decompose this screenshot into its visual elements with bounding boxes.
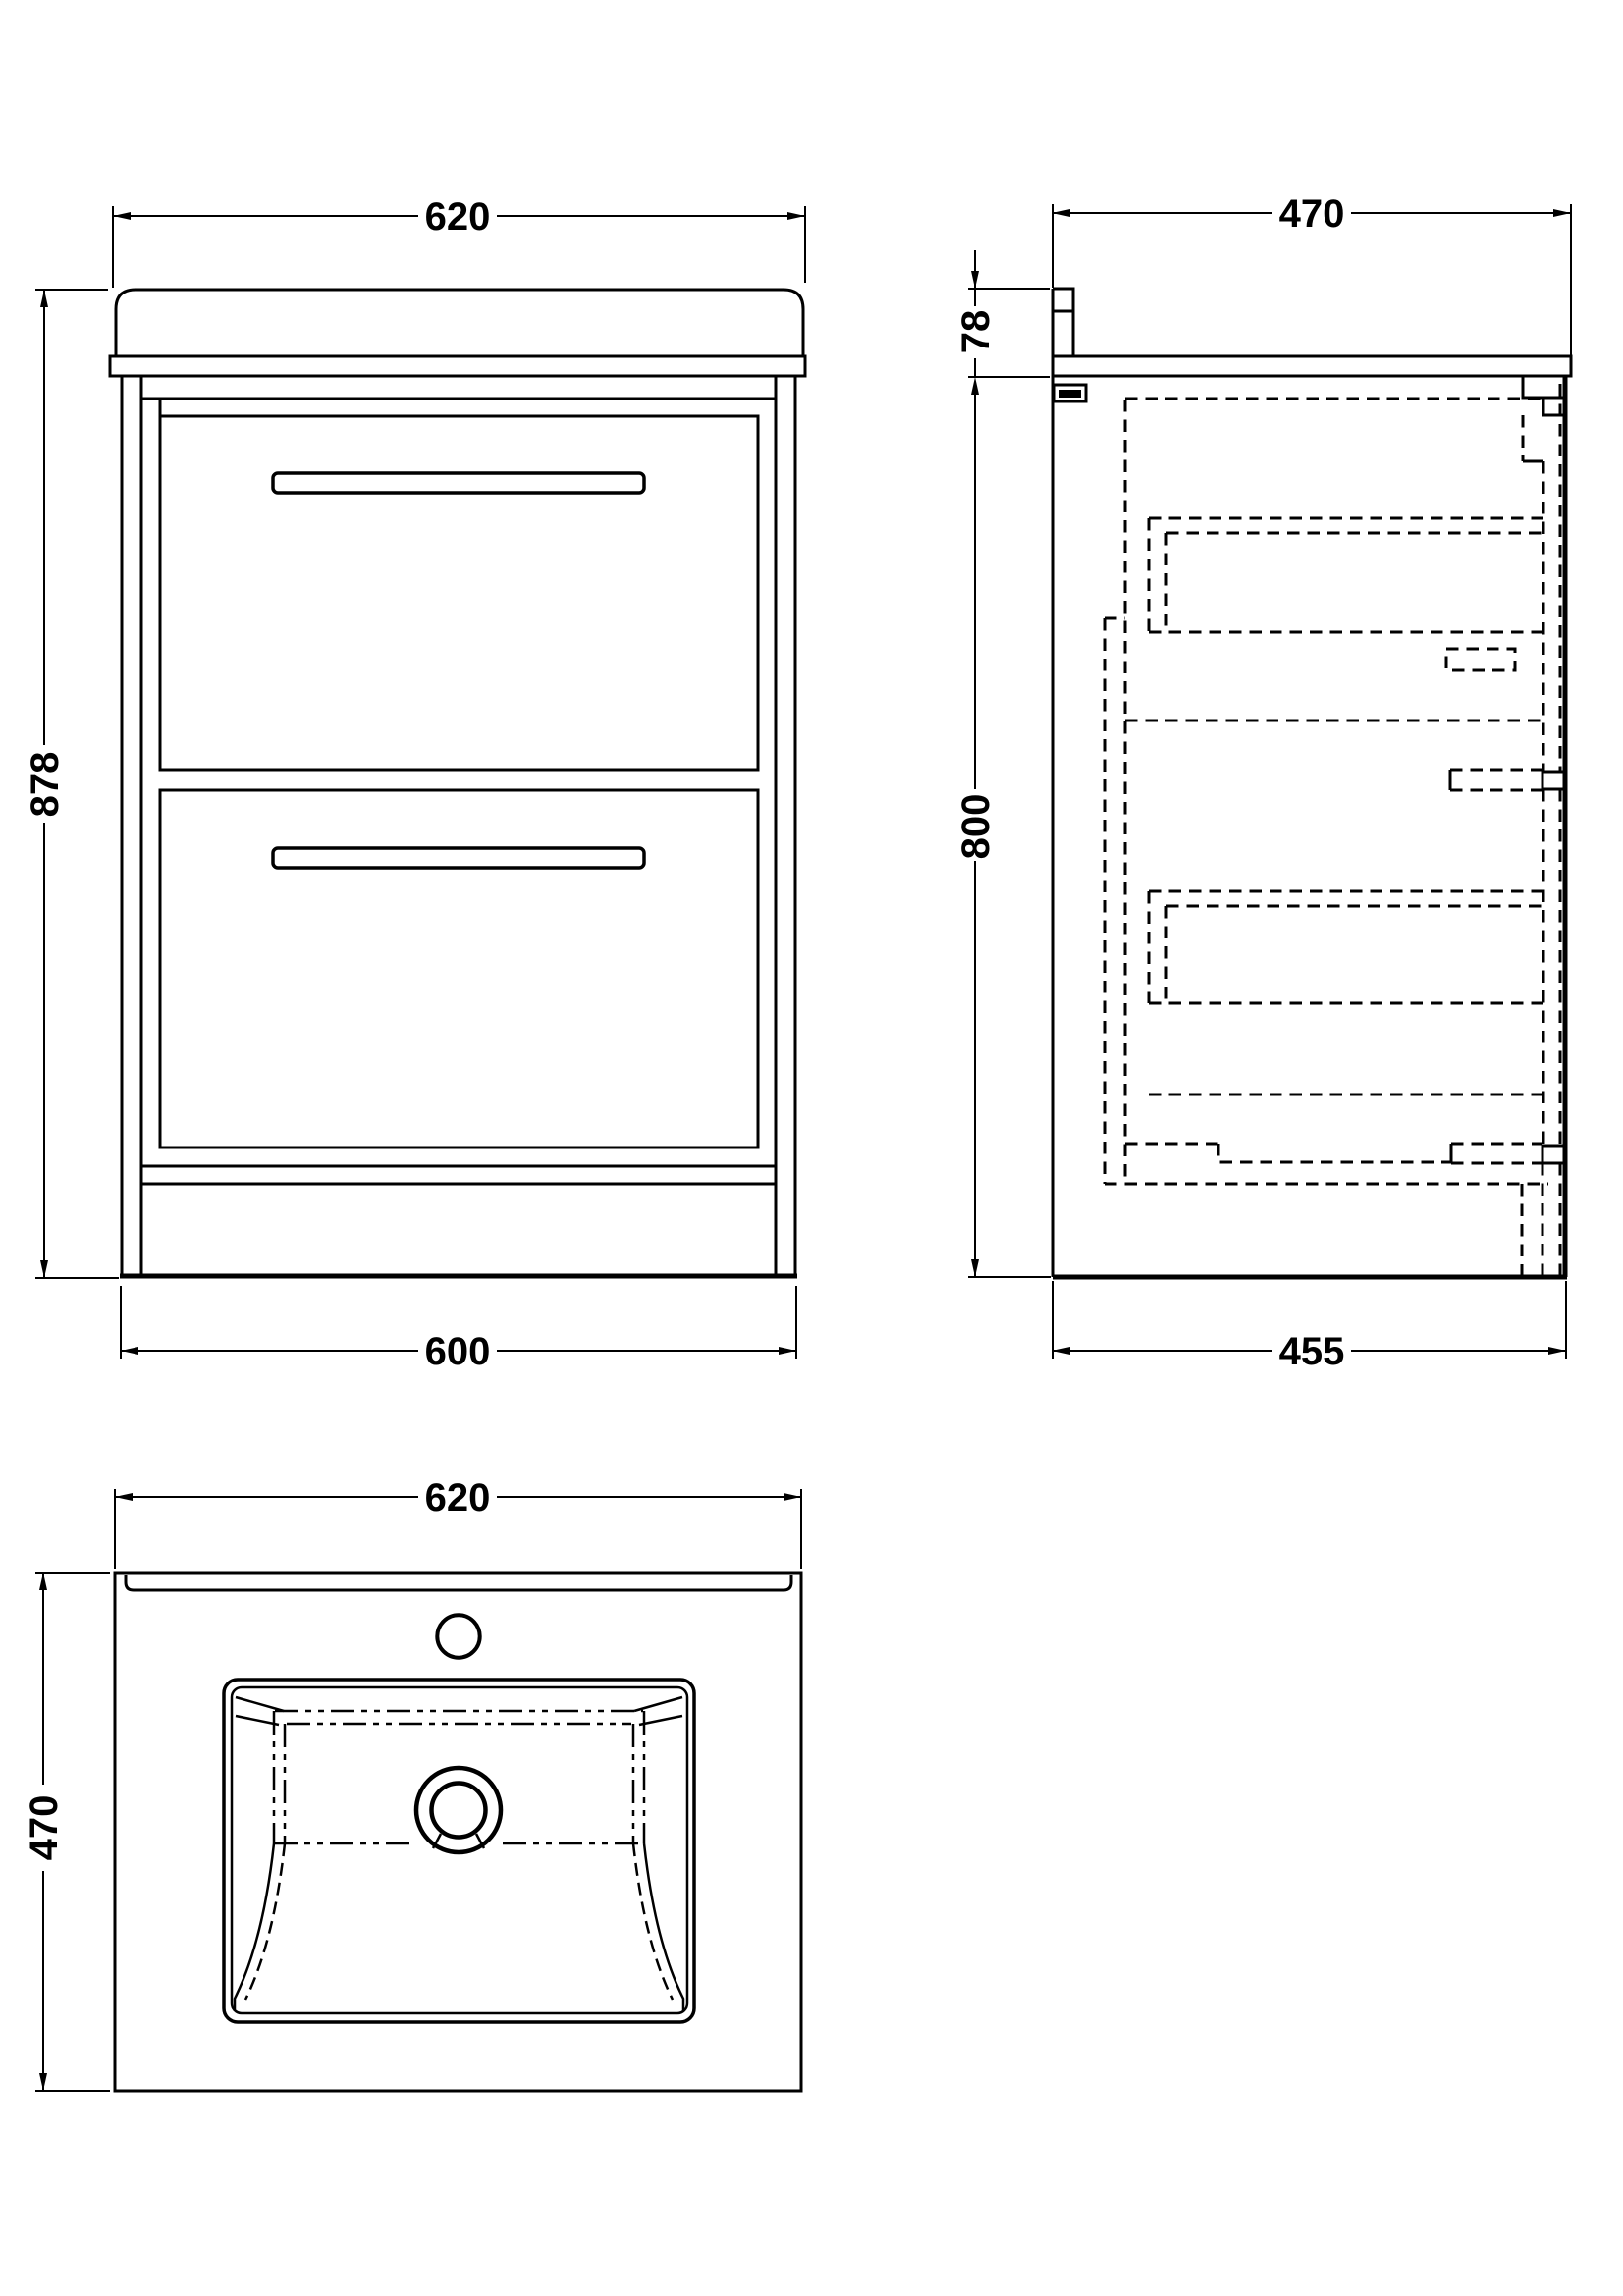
svg-text:600: 600 — [425, 1330, 491, 1373]
svg-text:800: 800 — [954, 794, 998, 860]
svg-text:620: 620 — [425, 195, 491, 239]
svg-text:620: 620 — [425, 1476, 491, 1520]
svg-text:455: 455 — [1279, 1330, 1345, 1373]
svg-text:78: 78 — [954, 310, 998, 354]
svg-text:470: 470 — [1279, 192, 1345, 236]
svg-text:878: 878 — [24, 752, 67, 818]
svg-text:470: 470 — [23, 1795, 66, 1861]
